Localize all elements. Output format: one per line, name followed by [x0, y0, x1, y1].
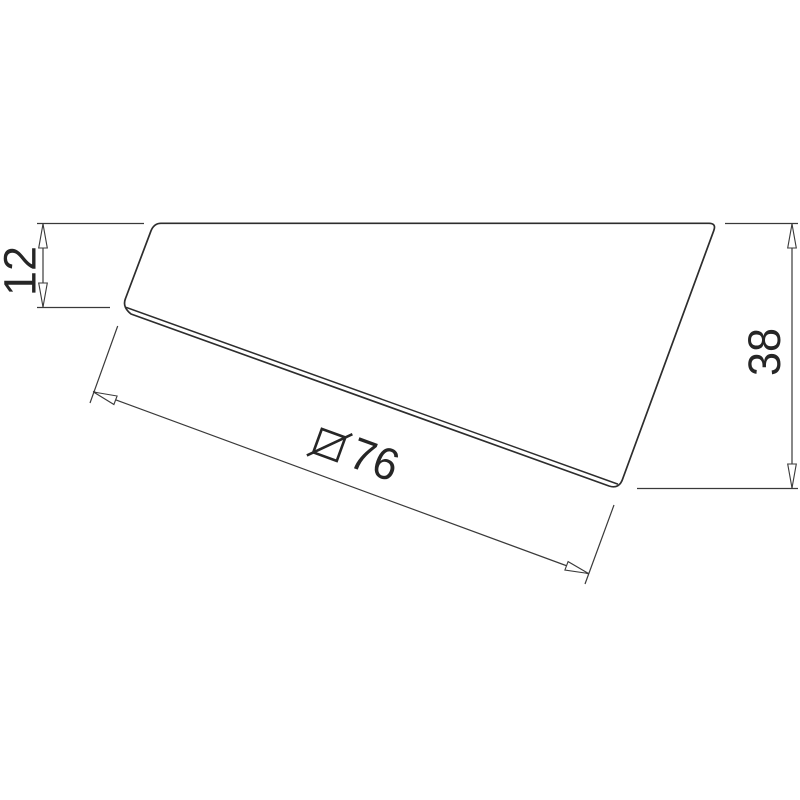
arrow-up-left-icon [94, 392, 118, 405]
arrow-up-icon [788, 224, 797, 248]
dimension-label-76-group: 76 [305, 413, 406, 491]
arrow-up-icon [39, 224, 48, 248]
square-symbol-icon [307, 422, 353, 468]
dimension-label-76: 76 [343, 427, 406, 491]
extension-line [585, 505, 614, 584]
arrow-down-icon [788, 464, 797, 488]
technical-drawing-canvas: 12 38 76 [0, 0, 800, 800]
dimension-label-38: 38 [739, 328, 790, 376]
dimension-left-height: 12 [0, 224, 144, 308]
plate-outline [125, 223, 715, 487]
dimension-line [93, 392, 589, 575]
arrow-down-right-icon [565, 562, 589, 574]
dimension-drawing-svg: 12 38 76 [0, 0, 800, 800]
part-cover-plate [125, 223, 715, 487]
dimension-right-height: 38 [637, 224, 798, 489]
dimension-label-12: 12 [0, 246, 46, 296]
